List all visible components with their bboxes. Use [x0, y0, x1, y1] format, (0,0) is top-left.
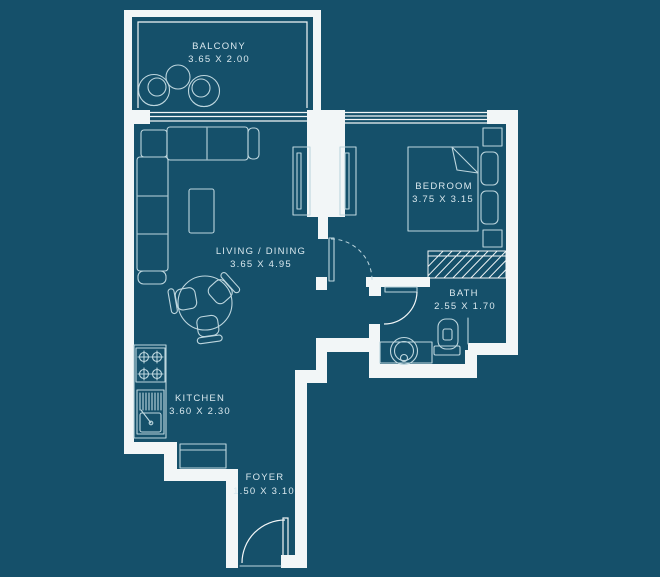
bath-top-wall	[366, 277, 430, 287]
bedroom-door-swing-arc	[331, 239, 372, 280]
patio-chair-left	[139, 75, 170, 106]
bedroom-window	[345, 113, 487, 124]
balcony-wall-top	[124, 10, 321, 17]
bedroom-door-jamb	[316, 277, 327, 290]
bedroom-door	[329, 238, 372, 281]
dining-chair	[168, 285, 198, 314]
pillow	[481, 191, 498, 224]
balcony-slider-window	[150, 113, 307, 122]
burner	[151, 351, 163, 363]
dining-set	[168, 271, 241, 344]
floor-plan: BALCONY 3.65 X 2.00 LIVING / DINING 3.65…	[0, 0, 660, 577]
doors	[240, 238, 417, 566]
bath-door	[384, 287, 417, 324]
washer-closet	[180, 444, 226, 468]
patio-chair-right	[189, 76, 220, 107]
living-bedroom-wall	[318, 113, 328, 239]
balcony-furniture	[139, 65, 220, 107]
left-wall	[124, 110, 134, 454]
living-dining-label: LIVING / DINING	[216, 246, 306, 257]
duvet-fold	[452, 147, 478, 173]
entry-door	[240, 518, 288, 566]
entry-door-swing-arc	[242, 520, 285, 563]
balcony-wall-right	[313, 10, 321, 114]
foyer-left-wall	[226, 469, 238, 568]
bath-bottom-wall	[369, 364, 477, 378]
bedroom-door-leaf	[329, 238, 334, 281]
foyer-right-wall	[295, 370, 307, 568]
foyer-dimensions: 1.50 X 3.10	[233, 486, 295, 497]
patio-table	[166, 65, 190, 89]
balcony-wall-left	[124, 10, 132, 114]
pillow	[481, 152, 498, 185]
stove	[136, 348, 165, 382]
balcony-dimensions: 3.65 X 2.00	[188, 54, 250, 65]
kitchen-dimensions: 3.60 X 2.30	[169, 406, 231, 417]
room-labels: BALCONY 3.65 X 2.00 LIVING / DINING 3.65…	[169, 41, 496, 497]
bedroom-dimensions: 3.75 X 3.15	[412, 194, 474, 205]
toilet	[434, 319, 460, 355]
living-furniture	[137, 127, 310, 344]
bedroom-label: BEDROOM	[415, 181, 473, 192]
bath-label: BATH	[449, 288, 478, 299]
faucet	[141, 410, 151, 423]
kitchen-label: KITCHEN	[175, 393, 225, 404]
nightstand-bottom	[483, 230, 502, 247]
bath-door-swing-arc	[384, 292, 417, 324]
living-dining-dimensions: 3.65 X 4.95	[230, 259, 292, 270]
bath-dimensions: 2.55 X 1.70	[434, 301, 496, 312]
coffee-table	[189, 189, 214, 233]
foyer-label: FOYER	[246, 472, 285, 483]
kitchen-sink	[137, 390, 164, 434]
burner	[138, 351, 150, 363]
kitchen-fixtures	[134, 345, 166, 438]
burner	[138, 368, 150, 380]
balcony-inner-line	[138, 22, 307, 108]
foyer-fixtures	[180, 444, 226, 468]
right-wall	[506, 110, 518, 355]
nightstand-top	[483, 128, 502, 146]
vanity-sink	[380, 338, 432, 365]
balcony-label: BALCONY	[192, 41, 246, 52]
bath-door-leaf	[385, 287, 417, 292]
burner	[151, 368, 163, 380]
